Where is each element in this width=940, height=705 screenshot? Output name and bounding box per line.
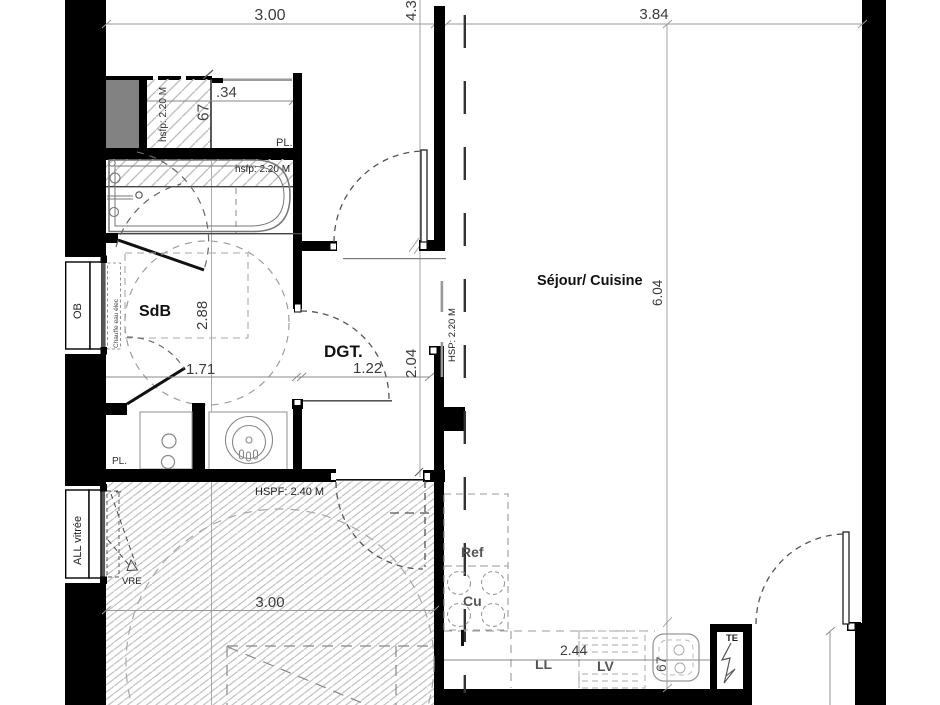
- svg-text:Chauffe eau élec: Chauffe eau élec: [113, 298, 120, 348]
- svg-text:OB: OB: [72, 303, 84, 319]
- svg-text:4.31: 4.31: [403, 0, 420, 21]
- svg-text:LL: LL: [535, 656, 553, 672]
- svg-text:.34: .34: [216, 84, 237, 101]
- svg-text:DGT.: DGT.: [324, 342, 363, 361]
- svg-text:1.71: 1.71: [186, 361, 215, 378]
- svg-text:VRE: VRE: [122, 576, 142, 587]
- svg-text:Séjour/ Cuisine: Séjour/ Cuisine: [537, 273, 643, 289]
- svg-text:2.04: 2.04: [403, 349, 420, 378]
- svg-text:PL.: PL.: [276, 137, 293, 149]
- svg-text:6.04: 6.04: [650, 279, 665, 306]
- svg-text:hsfp: 2.20 M: hsfp: 2.20 M: [158, 87, 169, 142]
- svg-text:67: 67: [653, 656, 669, 672]
- svg-text:1.22: 1.22: [353, 360, 382, 377]
- svg-text:SdB: SdB: [139, 303, 171, 320]
- svg-text:Cu: Cu: [463, 593, 482, 609]
- svg-text:PL.: PL.: [112, 456, 127, 467]
- svg-text:Ref: Ref: [461, 544, 484, 560]
- svg-text:67: 67: [196, 104, 213, 121]
- svg-text:ALL vitrée: ALL vitrée: [72, 516, 84, 565]
- svg-text:3.00: 3.00: [255, 594, 284, 611]
- svg-text:3.00: 3.00: [254, 7, 285, 24]
- svg-text:2.44: 2.44: [560, 642, 587, 658]
- svg-text:HSP: 2.20 M: HSP: 2.20 M: [447, 308, 458, 362]
- svg-text:HSPF: 2.40 M: HSPF: 2.40 M: [255, 486, 324, 498]
- svg-text:3.84: 3.84: [639, 6, 668, 23]
- svg-text:2.88: 2.88: [194, 301, 211, 330]
- svg-text:TE: TE: [726, 633, 738, 644]
